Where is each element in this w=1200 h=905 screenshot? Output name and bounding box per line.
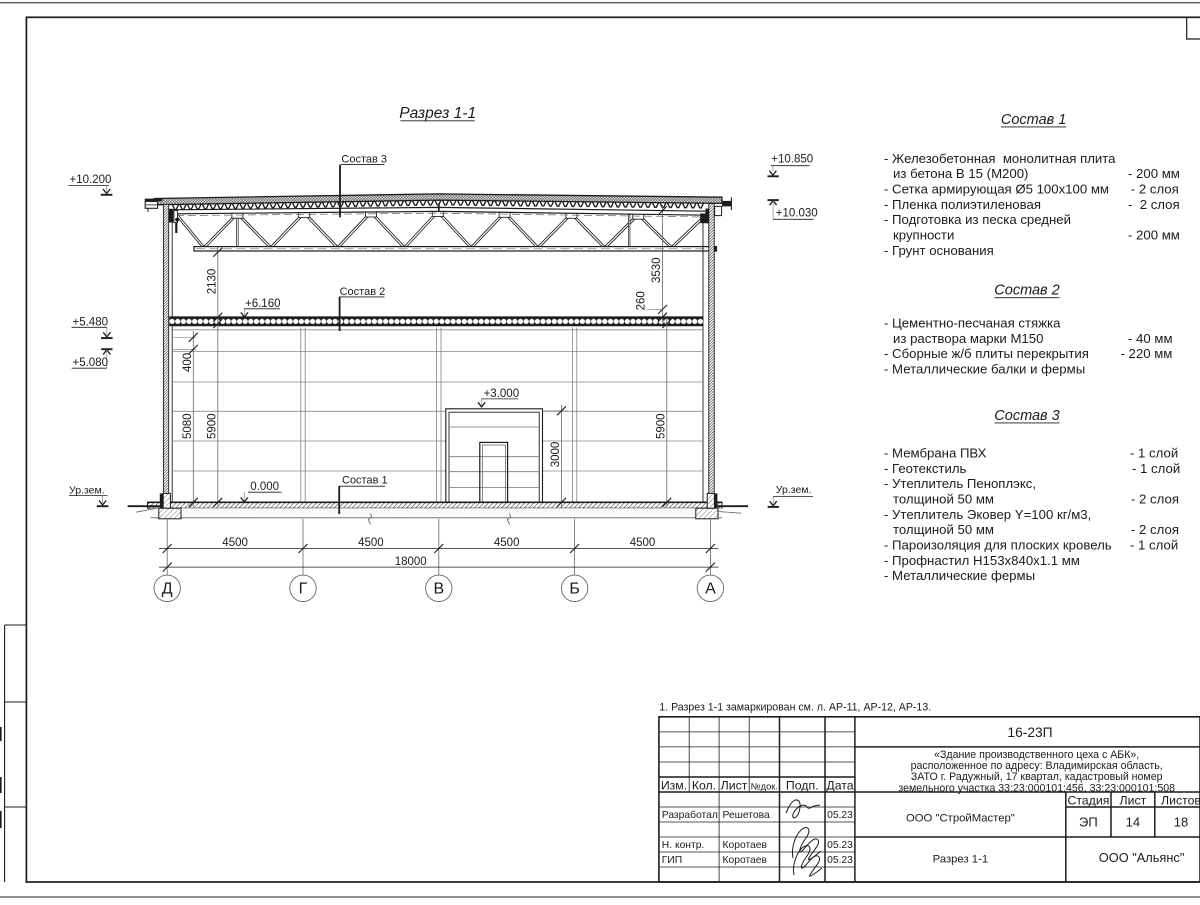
svg-text:№док.: №док. [751, 782, 778, 792]
svg-text:- Сборные ж/б плиты перекрытия: - Сборные ж/б плиты перекрытия [884, 346, 1089, 361]
svg-text:- 1 слой: - 1 слой [1132, 461, 1180, 476]
svg-text:Состав 3: Состав 3 [341, 153, 387, 165]
svg-text:Лист: Лист [721, 779, 748, 793]
svg-text:- Мембрана ПВХ: - Мембрана ПВХ [884, 446, 987, 461]
svg-text:+5.480: +5.480 [73, 316, 109, 328]
svg-text:Решетова: Решетова [723, 810, 770, 821]
svg-text:- Железобетонная монолитная п: - Железобетонная монолитная плита [884, 151, 1116, 166]
svg-text:- Металлические фермы: - Металлические фермы [884, 568, 1035, 583]
svg-text:Подп.: Подп. [786, 779, 819, 793]
svg-text:4500: 4500 [494, 537, 520, 549]
svg-text:ООО "СтройМастер": ООО "СтройМастер" [906, 812, 1015, 824]
svg-text:Состав 3: Состав 3 [994, 408, 1059, 424]
svg-text:- 2 слоя: - 2 слоя [1128, 197, 1180, 212]
svg-text:- 200 мм: - 200 мм [1128, 166, 1180, 181]
svg-text:Состав 1: Состав 1 [1001, 112, 1066, 128]
svg-text:- Профнастил Н153х840х1.1 мм: - Профнастил Н153х840х1.1 мм [884, 553, 1080, 568]
svg-text:260: 260 [636, 291, 648, 310]
svg-text:- Утеплитель Эковер Y=100 кг/м: - Утеплитель Эковер Y=100 кг/м3, [884, 507, 1091, 522]
svg-text:ЭП: ЭП [1079, 815, 1098, 830]
svg-text:Состав 2: Состав 2 [340, 286, 386, 298]
svg-text:05.23: 05.23 [827, 840, 853, 851]
svg-text:5900: 5900 [655, 413, 667, 439]
svg-text:18: 18 [1174, 815, 1188, 830]
svg-text:Г: Г [299, 581, 308, 598]
svg-text:05.23: 05.23 [827, 810, 853, 821]
svg-text:Коротаев: Коротаев [723, 840, 768, 851]
svg-text:Разрез 1-1: Разрез 1-1 [933, 854, 988, 866]
svg-text:5080: 5080 [182, 413, 194, 439]
svg-text:ЗАТО г. Радужный, 17 квартал,: ЗАТО г. Радужный, 17 квартал, кадастровы… [911, 771, 1163, 783]
svg-text:Ур.зем.: Ур.зем. [776, 484, 812, 496]
svg-text:- 40 мм: - 40 мм [1128, 331, 1173, 346]
svg-text:ГИП: ГИП [662, 855, 682, 866]
svg-text:4500: 4500 [222, 537, 248, 549]
svg-text:Состав 1: Состав 1 [342, 475, 388, 487]
svg-text:400: 400 [182, 353, 194, 372]
svg-text:Н. контр.: Н. контр. [662, 840, 705, 851]
svg-text:из раствора марки М150: из раствора марки М150 [893, 331, 1043, 346]
svg-text:14: 14 [1126, 815, 1140, 830]
svg-text:16-23П: 16-23П [1007, 725, 1052, 740]
svg-text:- 2 слоя: - 2 слоя [1131, 492, 1179, 507]
svg-text:Дата: Дата [826, 779, 853, 793]
svg-text:3000: 3000 [550, 442, 562, 468]
svg-text:из бетона В 15 (М200): из бетона В 15 (М200) [893, 166, 1028, 181]
svg-text:0.000: 0.000 [250, 481, 279, 493]
svg-text:Кол.: Кол. [692, 779, 716, 793]
svg-text:- 2 слоя: - 2 слоя [1131, 522, 1179, 537]
svg-text:1. Разрез 1-1 замаркирован см.: 1. Разрез 1-1 замаркирован см. л. АР-11,… [659, 701, 931, 713]
svg-text:А: А [705, 581, 716, 598]
svg-text:+6.160: +6.160 [245, 298, 281, 310]
svg-text:Разрез 1-1: Разрез 1-1 [399, 105, 476, 122]
svg-text:2130: 2130 [206, 269, 218, 295]
svg-text:Разработал: Разработал [662, 809, 718, 821]
svg-text:- 1 слой: - 1 слой [1130, 446, 1178, 461]
svg-text:- Металлические балки и фермы: - Металлические балки и фермы [884, 362, 1085, 377]
svg-text:- 220 мм: - 220 мм [1121, 346, 1173, 361]
svg-text:- Пароизоляция для плоских кро: - Пароизоляция для плоских кровель [884, 538, 1112, 553]
svg-text:толщиной 50 мм: толщиной 50 мм [893, 492, 994, 507]
svg-text:«Здание производственного цеха: «Здание производственного цеха с АБК», [934, 749, 1139, 761]
svg-text:- 2 слоя: - 2 слоя [1131, 182, 1179, 197]
svg-text:4500: 4500 [358, 537, 384, 549]
svg-text:+3.000: +3.000 [484, 388, 519, 400]
svg-text:- Пленка полиэтиленовая: - Пленка полиэтиленовая [884, 197, 1041, 212]
svg-text:расположенное по адресу: Влади: расположенное по адресу: Владимирская об… [911, 760, 1163, 772]
svg-text:Коротаев: Коротаев [723, 855, 768, 866]
svg-text:3530: 3530 [651, 257, 663, 283]
svg-text:Стадия: Стадия [1067, 793, 1109, 807]
svg-text:крупности: крупности [893, 228, 954, 243]
svg-text:Б: Б [569, 581, 580, 598]
svg-text:5900: 5900 [206, 413, 218, 439]
svg-text:Д: Д [162, 581, 173, 598]
svg-text:- Подготовка из песка средней: - Подготовка из песка средней [884, 212, 1071, 227]
svg-text:ООО "Альянс": ООО "Альянс" [1099, 850, 1185, 865]
svg-text:В: В [433, 581, 444, 598]
svg-text:- Грунт основания: - Грунт основания [884, 243, 994, 258]
svg-text:толщиной 50 мм: толщиной 50 мм [893, 522, 994, 537]
svg-text:- Геотекстиль: - Геотекстиль [884, 461, 967, 476]
svg-text:Состав 2: Состав 2 [994, 283, 1059, 299]
svg-text:- Цементно-песчаная стяжка: - Цементно-песчаная стяжка [884, 316, 1061, 331]
svg-text:Листов: Листов [1161, 793, 1200, 807]
svg-text:+5.080: +5.080 [73, 357, 109, 369]
svg-text:- 1 слой: - 1 слой [1130, 538, 1178, 553]
svg-text:05.23: 05.23 [827, 855, 853, 866]
svg-text:- 200 мм: - 200 мм [1128, 228, 1180, 243]
svg-text:18000: 18000 [395, 556, 427, 568]
svg-text:Лист: Лист [1120, 793, 1147, 807]
svg-text:+10.030: +10.030 [776, 208, 818, 220]
svg-text:+10.850: +10.850 [771, 154, 813, 166]
svg-text:Ур.зем.: Ур.зем. [69, 485, 105, 497]
svg-text:4500: 4500 [630, 537, 656, 549]
svg-text:+10.200: +10.200 [70, 174, 112, 186]
svg-text:- Сетка армирующая Ø5 100х100: - Сетка армирующая Ø5 100х100 мм [884, 182, 1109, 197]
svg-text:- Утеплитель Пеноплэкс,: - Утеплитель Пеноплэкс, [884, 476, 1036, 491]
svg-text:Изм.: Изм. [661, 779, 687, 793]
